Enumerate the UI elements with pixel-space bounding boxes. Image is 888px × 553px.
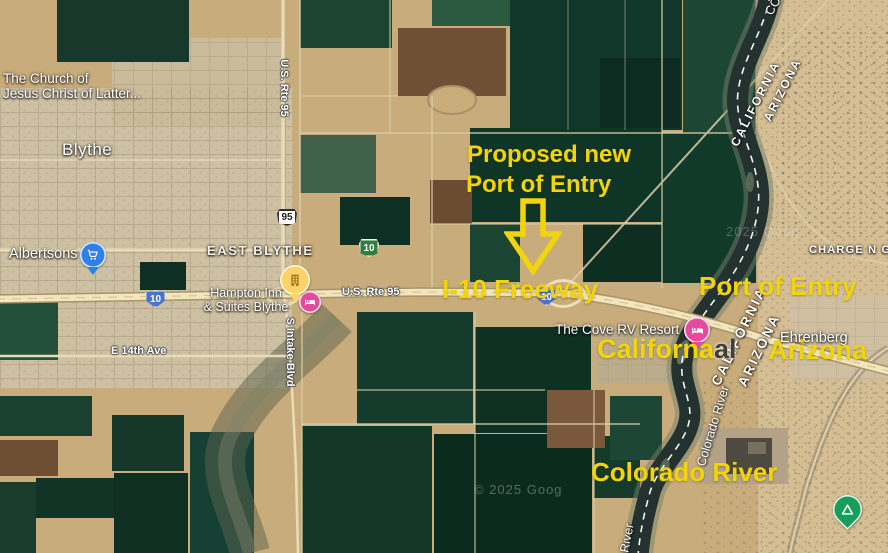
annotation-colorado-river: Colorado River xyxy=(591,457,777,488)
district-label-east-blythe: EAST BLYTHE xyxy=(207,244,314,259)
us-rte-95-label-vertical: U.S. Rte 95 xyxy=(278,59,290,116)
church-label[interactable]: The Church of Jesus Christ of Latter... xyxy=(3,71,141,101)
city-label-blythe[interactable]: Blythe xyxy=(62,140,112,159)
bed-icon xyxy=(304,296,316,308)
annotation-proposed-line1: Proposed new xyxy=(467,141,631,169)
annotation-port-of-entry: Port of Entry xyxy=(699,271,856,302)
annotation-arizona: Arizona xyxy=(768,335,867,366)
hampton-hotel-pin[interactable] xyxy=(280,265,310,295)
s-intake-blvd-label: S Intake Blvd xyxy=(284,317,296,386)
underlying-map-text: al xyxy=(714,334,737,364)
annotation-proposed-line2: Port of Entry xyxy=(466,171,611,199)
building-icon xyxy=(287,272,303,288)
tent-triangle-icon xyxy=(840,502,855,517)
map-watermark-2: 2025 Goog xyxy=(726,224,799,239)
map-watermark: © 2025 Goog xyxy=(474,482,563,497)
albertsons-label[interactable]: Albertsons xyxy=(9,246,78,262)
hampton-lodging-dot[interactable] xyxy=(299,291,321,313)
e-14th-ave-label: E 14th Ave xyxy=(111,345,166,357)
annotation-california: Californaal xyxy=(597,334,737,365)
charge-n-go-label[interactable]: CHARGE N G xyxy=(809,244,888,256)
albertsons-pin[interactable] xyxy=(80,242,106,268)
shopping-cart-icon xyxy=(86,248,100,262)
us-rte-95-label-horizontal: U.S. Rte 95 xyxy=(342,286,399,298)
annotation-i10-freeway: I-10 Freeway xyxy=(442,274,598,305)
proposed-poe-arrow xyxy=(504,198,562,276)
satellite-map-canvas[interactable]: © 2025 Goog 2025 Goog The Church of Jesu… xyxy=(0,0,888,553)
